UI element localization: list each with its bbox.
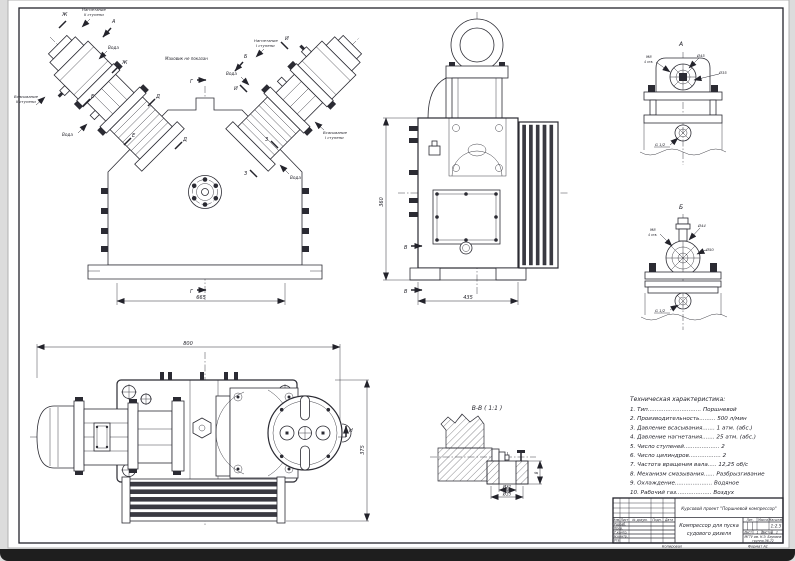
svg-text:М8: М8 [646,54,652,59]
svg-text:Лит.: Лит. [745,518,753,522]
doc-title-line1: Компрессор для пуска [679,523,739,529]
mark-zh-2: Ж [121,60,128,66]
svg-text:4 отв.: 4 отв. [648,233,657,237]
label-water-3: Вода [226,71,237,76]
head-flange [446,66,508,78]
mark-d-2: Д [182,137,187,143]
bb-casting-lower [438,448,492,481]
svg-text:Листов: Листов [760,530,773,534]
svg-text:800: 800 [183,341,193,347]
flywheel-top [122,477,285,523]
cylinder-barrel-side [452,78,502,118]
svg-text:G 1/2: G 1/2 [655,142,666,147]
svg-text:Ø35: Ø35 [718,70,727,75]
svg-text:1: 1 [776,530,778,534]
mark-b: Б [244,54,248,60]
tech-item-3: 3. Давление всасывания....... 1 атм. (аб… [630,425,753,431]
drawing-sheet: Г Г Ж Ж А Б Е Е Д Д И И З З Вода Вода Во… [0,0,795,549]
note-flywheel: Маховик не показан [165,56,208,61]
tech-item-8: 8. Механизм смазывания...... Разбрызгива… [630,471,765,477]
label-water-2: Вода [62,132,73,137]
inspection-cover [433,190,500,244]
drain-plug [460,242,472,254]
tech-title: Техническая характеристика: [630,396,725,403]
mark-i-2: И [234,86,238,92]
svg-text:Подп.: Подп. [652,518,661,522]
section-bb-title: В-В ( 1:1 ) [472,405,502,412]
flywheel-side [519,122,558,268]
tech-item-10: 10. Рабочий газ.................... Возд… [630,490,735,496]
screenshot-stage: Г Г Ж Ж А Б Е Е Д Д И И З З Вода Вода Во… [0,0,795,561]
svg-text:Масштаб: Масштаб [769,518,784,522]
svg-text:Ø21: Ø21 [502,485,512,490]
svg-text:Масса: Масса [758,518,768,522]
crankshaft-flange [189,176,222,209]
svg-text:М8: М8 [650,227,656,232]
bb-casting-upper [441,414,484,448]
mark-v-1: В [404,245,408,251]
svg-text:665: 665 [196,295,206,301]
foot-right [496,268,526,280]
tech-item-6: 6. Число цилиндров.................. 2 [630,453,727,459]
tech-item-9: 9. Охлаждение..................... Водян… [630,481,740,487]
project-name: Курсовой проект "Поршневой компрессор" [681,506,776,511]
svg-text:№ докум.: № докум. [631,518,647,522]
svg-text:Ø45: Ø45 [696,53,705,58]
svg-text:8: 8 [534,471,539,474]
mark-v-2: В [404,289,408,295]
svg-text:4 отв.: 4 отв. [644,60,653,64]
doc-title-line2: судового дизеля [687,531,731,537]
footer-copied: Копировал [662,545,683,549]
tech-item-2: 2. Производительность......... 500 л/мин [630,416,747,422]
org-line2: группа Э6-72 [752,539,774,543]
svg-text:II ступени: II ступени [84,12,104,17]
svg-text:I ступени: I ступени [256,43,275,48]
base-plate [88,265,322,279]
svg-text:G 1/2: G 1/2 [655,308,666,313]
svg-text:1: 1 [757,530,759,534]
mark-zh-1: Ж [61,12,68,18]
tech-item-4: 4. Давление нагнетания....... 25 атм. (а… [630,435,756,441]
svg-text:I ступени: I ступени [325,135,344,140]
svg-text:435: 435 [463,295,473,301]
svg-text:Лист: Лист [743,530,752,534]
foot-left [410,268,440,280]
svg-text:360: 360 [379,197,385,207]
svg-text:Ø50: Ø50 [705,247,714,252]
footer-format: Формат А1 [748,545,768,549]
svg-text:II ступени: II ступени [16,99,36,104]
b-valve-cluster [666,241,700,275]
window-bottom-edge [0,549,795,561]
svg-text:375: 375 [360,445,366,455]
tech-item-1: 1. Тип.............................. Пор… [630,407,737,413]
scale-value: 1:2.5 [771,524,782,529]
view-b-title: Б [679,204,683,211]
svg-text:Ø35: Ø35 [502,492,512,497]
mark-a: А [111,19,116,25]
mark-d-1: Д [155,94,160,100]
view-a-title: А [678,41,683,48]
mark-i-1: И [285,36,289,42]
a-valve-cluster [670,64,696,90]
svg-text:Н: Н [349,428,353,434]
tech-item-5: 5. Число ступеней.................... 2 [630,444,725,450]
svg-text:Утв.: Утв. [614,538,621,542]
svg-text:Дата: Дата [664,518,673,522]
svg-text:Ø44: Ø44 [697,223,706,228]
tech-item-7: 7. Частота вращения вала..... 12,25 об/с [630,462,748,468]
label-water-1: Вода [108,45,119,50]
label-water-4: Вода [290,175,301,180]
head-cover [451,19,503,71]
